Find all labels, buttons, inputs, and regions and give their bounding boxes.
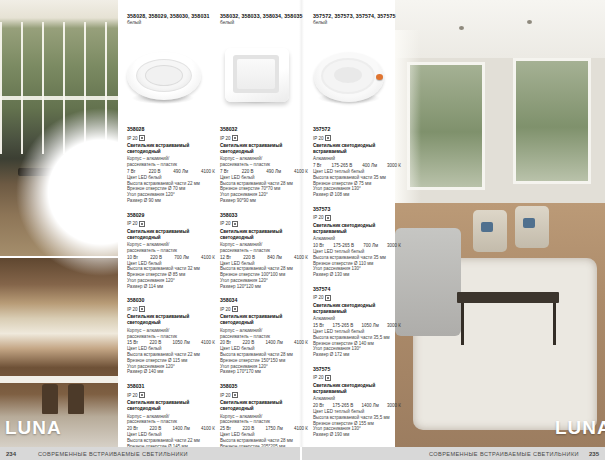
recessed-mount-icon (232, 135, 238, 141)
spec-volt: 220 В (242, 169, 254, 174)
recess-height: Высота встраиваемой части 35,5 мм (313, 335, 403, 341)
product-specs: 7 Вт 220 В 490 Лм 4100 К (220, 169, 308, 174)
section-title-left: СОВРЕМЕННЫЕ ВСТРАИВАЕМЫЕ СВЕТИЛЬНИКИ (38, 451, 188, 457)
product-title: Светильник встраиваемый светодиодный (127, 400, 217, 412)
spec-watt: 20 Вт (127, 426, 138, 431)
lamp-trim-ring (127, 52, 201, 100)
product-code: 358032 (220, 126, 310, 132)
spec-lumen: 700 Лм (363, 243, 378, 248)
product-photo-round-downlight-tilted (120, 44, 210, 116)
product-specs: 7 Вт 175-265 В 400 Лм 3000 К (313, 163, 401, 168)
product-title: Светильник встраиваемый светодиодный (127, 143, 217, 155)
product-block: 358033 IP 20 Светильник встраиваемый све… (220, 212, 310, 290)
product-code: 357572 (313, 126, 403, 132)
bar-stool (42, 384, 58, 414)
product-code: 358030 (127, 297, 217, 303)
product-material-2: рассеиватель – пластик (220, 334, 310, 340)
spec-volt: 175-265 В (332, 323, 353, 328)
product-title: Светильник встраиваемый светодиодный (220, 143, 310, 155)
spec-watt: 10 Вт (127, 255, 138, 260)
spec-watt: 15 Вт (127, 340, 138, 345)
spec-watt: 7 Вт (220, 169, 229, 174)
overall-size: Размер 170*170 мм (220, 369, 310, 375)
footer-bar-left: 234 СОВРЕМЕННЫЕ ВСТРАИВАЕМЫЕ СВЕТИЛЬНИКИ (0, 447, 300, 460)
ip-rating-row: IP 20 (313, 215, 403, 221)
product-code: 358031 (127, 383, 217, 389)
recessed-mount-icon (325, 375, 331, 381)
spec-kelvin: 3000 К (387, 163, 401, 168)
lamp-diffuser (145, 65, 183, 86)
product-specs: 20 Вт 175-265 В 1400 Лм 3000 К (313, 403, 401, 408)
overall-size: Размер Ø 130 мм (313, 272, 403, 278)
page-number-right: 235 (589, 451, 599, 457)
product-block: 358029 IP 20 Светильник встраиваемый све… (127, 212, 217, 290)
group-finish: белый (127, 20, 219, 25)
product-material: Алюминий (313, 316, 403, 322)
product-code: 358033 (220, 212, 310, 218)
overall-size: Размер 120*120 мм (220, 284, 310, 290)
table-leg (461, 303, 464, 345)
spec-lumen: 1400 Лм (173, 426, 190, 431)
brand-logo-luna-left: LUNA (5, 417, 62, 439)
spec-watt: 10 Вт (313, 243, 324, 248)
spec-column-2: 358032 IP 20 Светильник встраиваемый све… (220, 126, 310, 460)
ip-rating-row: IP 20 (220, 306, 310, 312)
overall-size: Размер Ø 140 мм (127, 369, 217, 375)
spec-kelvin: 4100 К (294, 340, 308, 345)
ip-rating-row: IP 20 (313, 295, 403, 301)
product-block: 358030 IP 20 Светильник встраиваемый све… (127, 297, 217, 375)
lamp-recess (321, 58, 375, 94)
ip-rating: IP 20 (220, 136, 230, 141)
recessed-mount-icon (325, 295, 331, 301)
ip-rating: IP 20 (313, 295, 323, 300)
product-material-2: рассеиватель – пластик (127, 248, 217, 254)
product-specs: 20 Вт 220 В 1400 Лм 4100 К (220, 340, 308, 345)
page-number-left: 234 (6, 451, 16, 457)
kitchen-counter (0, 376, 118, 383)
spec-kelvin: 4100 К (294, 169, 308, 174)
lamp-trim-frame (225, 48, 289, 102)
spec-volt: 175-265 В (333, 243, 354, 248)
product-specs: 10 Вт 220 В 700 Лм 4100 К (127, 255, 215, 260)
product-photo-round-downlight-flat (306, 44, 396, 116)
product-block: 357575 IP 20 Светильник светодиодный вст… (313, 366, 403, 438)
blue-pillow (481, 222, 493, 232)
recessed-mount-icon (139, 221, 145, 227)
product-title: Светильник светодиодный встраиваемый (313, 143, 403, 155)
spec-volt: 220 В (150, 255, 162, 260)
spec-watt: 12 Вт (220, 255, 231, 260)
overall-size: Размер Ø 190 мм (313, 432, 403, 438)
ip-rating: IP 20 (127, 307, 137, 312)
spec-kelvin: 4100 К (201, 340, 215, 345)
lamp-diffuser (334, 67, 362, 83)
product-block: 357574 IP 20 Светильник светодиодный вст… (313, 286, 403, 358)
product-code: 358028 (127, 126, 217, 132)
product-specs: 15 Вт 220 В 1050 Лм 4100 К (127, 340, 215, 345)
product-group-header-1: 358028, 358029, 358030, 358031 белый (127, 13, 219, 25)
spec-lumen: 490 Лм (266, 169, 281, 174)
lamp-recess (233, 55, 279, 93)
catalog-spread: 358028, 358029, 358030, 358031 белый 358… (0, 0, 605, 460)
recessed-mount-icon (325, 215, 331, 221)
product-material-2: рассеиватель – пластик (127, 334, 217, 340)
recessed-mount-icon (232, 392, 238, 398)
recessed-spot-icon (459, 26, 464, 30)
spec-kelvin: 4100 К (294, 255, 308, 260)
overall-size: Размер Ø 114 мм (127, 284, 217, 290)
ip-rating: IP 20 (127, 393, 137, 398)
spec-kelvin: 4100 К (201, 169, 215, 174)
product-title: Светильник светодиодный встраиваемый (313, 223, 403, 235)
recessed-mount-icon (139, 392, 145, 398)
table-leg (553, 303, 556, 345)
terminal-block-dot (376, 74, 383, 80)
ip-rating: IP 20 (127, 136, 137, 141)
product-title: Светильник встраиваемый светодиодный (220, 400, 310, 412)
product-block: 357572 IP 20 Светильник светодиодный вст… (313, 126, 403, 198)
ip-rating-row: IP 20 (127, 306, 217, 312)
product-code: 357573 (313, 206, 403, 212)
spec-watt: 7 Вт (127, 169, 136, 174)
spec-lumen: 400 Лм (362, 163, 377, 168)
recessed-mount-icon (232, 221, 238, 227)
lamp-trim-ring (314, 52, 384, 102)
spec-volt: 220 В (242, 340, 254, 345)
spec-kelvin: 4100 К (294, 426, 308, 431)
photo-living-room (395, 0, 605, 447)
product-material-2: рассеиватель – пластик (127, 419, 217, 425)
spec-volt: 220 В (243, 255, 255, 260)
ip-rating: IP 20 (313, 136, 323, 141)
product-title: Светильник светодиодный встраиваемый (313, 303, 403, 315)
recess-height: Высота встраиваемой части 35,5 мм (313, 415, 403, 421)
ip-rating-row: IP 20 (220, 221, 310, 227)
recessed-mount-icon (139, 306, 145, 312)
product-specs: 20 Вт 220 В 1400 Лм 4100 К (127, 426, 215, 431)
spec-lumen: 1400 Лм (266, 340, 283, 345)
spec-lumen: 700 Лм (174, 255, 189, 260)
spec-watt: 20 Вт (313, 403, 324, 408)
section-title-right: СОВРЕМЕННЫЕ ВСТРАИВАЕМЫЕ СВЕТИЛЬНИКИ (429, 451, 579, 457)
ip-rating-row: IP 20 (220, 135, 310, 141)
ip-rating-row: IP 20 (127, 221, 217, 227)
product-group-header-3: 357572, 357573, 357574, 357575 белый (313, 13, 405, 25)
product-title: Светильник встраиваемый светодиодный (127, 229, 217, 241)
spec-watt: 25 Вт (220, 426, 231, 431)
bar-stool (68, 384, 84, 414)
spec-volt: 220 В (149, 169, 161, 174)
product-specs: 15 Вт 175-265 В 1050 Лм 3000 К (313, 323, 401, 328)
coffee-table (457, 292, 559, 303)
spec-lumen: 490 Лм (173, 169, 188, 174)
product-code: 358029 (127, 212, 217, 218)
product-title: Светильник встраиваемый светодиодный (220, 314, 310, 326)
spec-volt: 175-265 В (332, 403, 353, 408)
footer-bar-right: СОВРЕМЕННЫЕ ВСТРАИВАЕМЫЕ СВЕТИЛЬНИКИ 235 (302, 447, 605, 460)
overall-size: Размер Ø 108 мм (313, 192, 403, 198)
spec-column-1: 358028 IP 20 Светильник встраиваемый све… (127, 126, 217, 460)
product-code: 357575 (313, 366, 403, 372)
spec-lumen: 1050 Лм (362, 323, 379, 328)
overall-size: Размер 90*90 мм (220, 198, 310, 204)
product-photo-square-downlight (213, 44, 303, 116)
product-title: Светильник встраиваемый светодиодный (220, 229, 310, 241)
product-material-2: рассеиватель – пластик (220, 248, 310, 254)
lamp-recess (136, 59, 192, 92)
spec-volt: 220 В (242, 426, 254, 431)
product-title: Светильник светодиодный встраиваемый (313, 383, 403, 395)
spec-kelvin: 4100 К (201, 426, 215, 431)
group-codes: 358028, 358029, 358030, 358031 (127, 13, 219, 19)
product-block: 358028 IP 20 Светильник встраиваемый све… (127, 126, 217, 204)
product-block: 358034 IP 20 Светильник встраиваемый све… (220, 297, 310, 375)
recessed-mount-icon (325, 135, 331, 141)
product-specs: 25 Вт 220 В 1750 Лм 4100 К (220, 426, 308, 431)
spec-kelvin: 3000 К (387, 323, 401, 328)
group-finish: белый (220, 20, 312, 25)
spec-lumen: 1050 Лм (173, 340, 190, 345)
overall-size: Размер Ø 90 мм (127, 198, 217, 204)
spec-watt: 7 Вт (313, 163, 322, 168)
product-block: 358032 IP 20 Светильник встраиваемый све… (220, 126, 310, 204)
ip-rating: IP 20 (220, 307, 230, 312)
ip-rating: IP 20 (220, 221, 230, 226)
product-specs: 7 Вт 220 В 490 Лм 4100 К (127, 169, 215, 174)
recessed-spot-icon (527, 20, 532, 24)
product-title: Светильник встраиваемый светодиодный (127, 314, 217, 326)
group-finish: белый (313, 20, 405, 25)
product-material-2: рассеиватель – пластик (220, 419, 310, 425)
recessed-mount-icon (139, 135, 145, 141)
ip-rating: IP 20 (313, 375, 323, 380)
product-code: 358034 (220, 297, 310, 303)
spec-volt: 220 В (149, 426, 161, 431)
product-group-header-2: 358032, 358033, 358034, 358035 белый (220, 13, 312, 25)
ip-rating-row: IP 20 (220, 392, 310, 398)
product-code: 357574 (313, 286, 403, 292)
spec-watt: 20 Вт (220, 340, 231, 345)
ip-rating-row: IP 20 (313, 135, 403, 141)
product-specs: 12 Вт 220 В 840 Лм 4100 К (220, 255, 308, 260)
ip-rating: IP 20 (127, 221, 137, 226)
lamp-diffuser (237, 59, 275, 89)
ip-rating-row: IP 20 (313, 375, 403, 381)
window-sill (0, 96, 118, 100)
spec-kelvin: 4100 К (201, 255, 215, 260)
product-specs: 10 Вт 175-265 В 700 Лм 3000 К (313, 243, 401, 248)
product-material: Алюминий (313, 156, 403, 162)
ip-rating: IP 20 (220, 393, 230, 398)
product-material: Алюминий (313, 236, 403, 242)
product-material: Алюминий (313, 396, 403, 402)
recessed-mount-icon (232, 306, 238, 312)
brand-logo-luna-right: LUNA (555, 417, 605, 439)
spec-volt: 220 В (149, 340, 161, 345)
overall-size: Размер Ø 172 мм (313, 352, 403, 358)
spec-watt: 15 Вт (313, 323, 324, 328)
ip-rating-row: IP 20 (127, 135, 217, 141)
spec-kelvin: 3000 К (387, 403, 401, 408)
product-material-2: рассеиватель – пластик (220, 162, 310, 168)
product-block: 357573 IP 20 Светильник светодиодный вст… (313, 206, 403, 278)
catalog-content: 358028, 358029, 358030, 358031 белый 358… (118, 0, 395, 447)
spec-volt: 175-265 В (332, 163, 353, 168)
product-material-2: рассеиватель – пластик (127, 162, 217, 168)
group-codes: 357572, 357573, 357574, 357575 (313, 13, 405, 19)
window-right (513, 58, 591, 184)
product-code: 358035 (220, 383, 310, 389)
ceiling (395, 0, 605, 58)
spec-column-3: 357572 IP 20 Светильник светодиодный вст… (313, 126, 403, 446)
spec-lumen: 1400 Лм (362, 403, 379, 408)
spec-lumen: 1750 Лм (266, 426, 283, 431)
spec-kelvin: 3000 К (387, 243, 401, 248)
ip-rating: IP 20 (313, 215, 323, 220)
sofa (395, 228, 461, 336)
ip-rating-row: IP 20 (127, 392, 217, 398)
blue-pillow (523, 218, 535, 228)
group-codes: 358032, 358033, 358034, 358035 (220, 13, 312, 19)
spec-lumen: 840 Лм (267, 255, 282, 260)
